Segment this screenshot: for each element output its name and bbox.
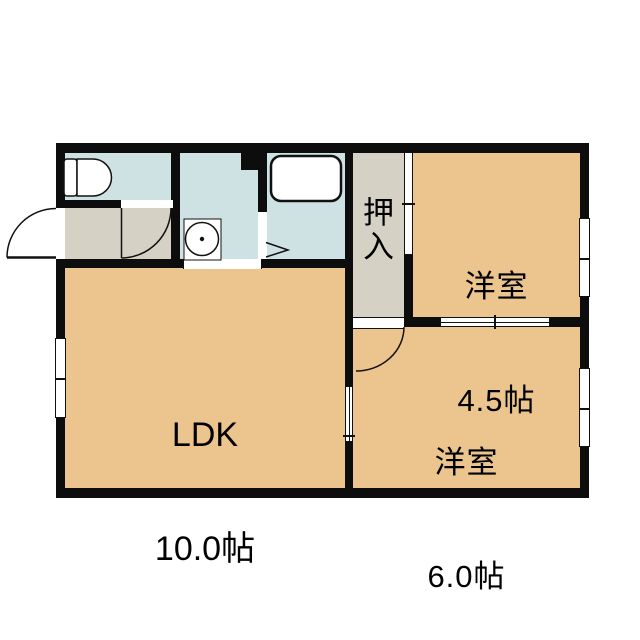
washing-machine-icon [184, 219, 221, 260]
ldk-label: LDK 10.0帖 [65, 340, 345, 640]
floor-plan: 押入 洋室 4.5帖 LDK 10.0帖 洋室 6.0帖 [0, 0, 640, 640]
room60-name: 洋室 [353, 444, 580, 482]
room60-size: 6.0帖 [353, 558, 580, 596]
entrance-swing-door-arc-icon [7, 209, 56, 258]
ldk-size: 10.0帖 [65, 530, 345, 568]
bathtub-icon [271, 156, 341, 201]
closet-label: 押入 [360, 196, 391, 264]
room60-swing-door-arc-icon [356, 327, 404, 371]
room45-name: 洋室 [413, 268, 580, 306]
toilet-icon [64, 159, 112, 196]
toilet-swing-door-arc-icon [122, 208, 172, 258]
room60-label: 洋室 6.0帖 [353, 368, 580, 640]
folding-door-arrow-icon [266, 243, 288, 258]
ldk-name: LDK [65, 416, 345, 454]
